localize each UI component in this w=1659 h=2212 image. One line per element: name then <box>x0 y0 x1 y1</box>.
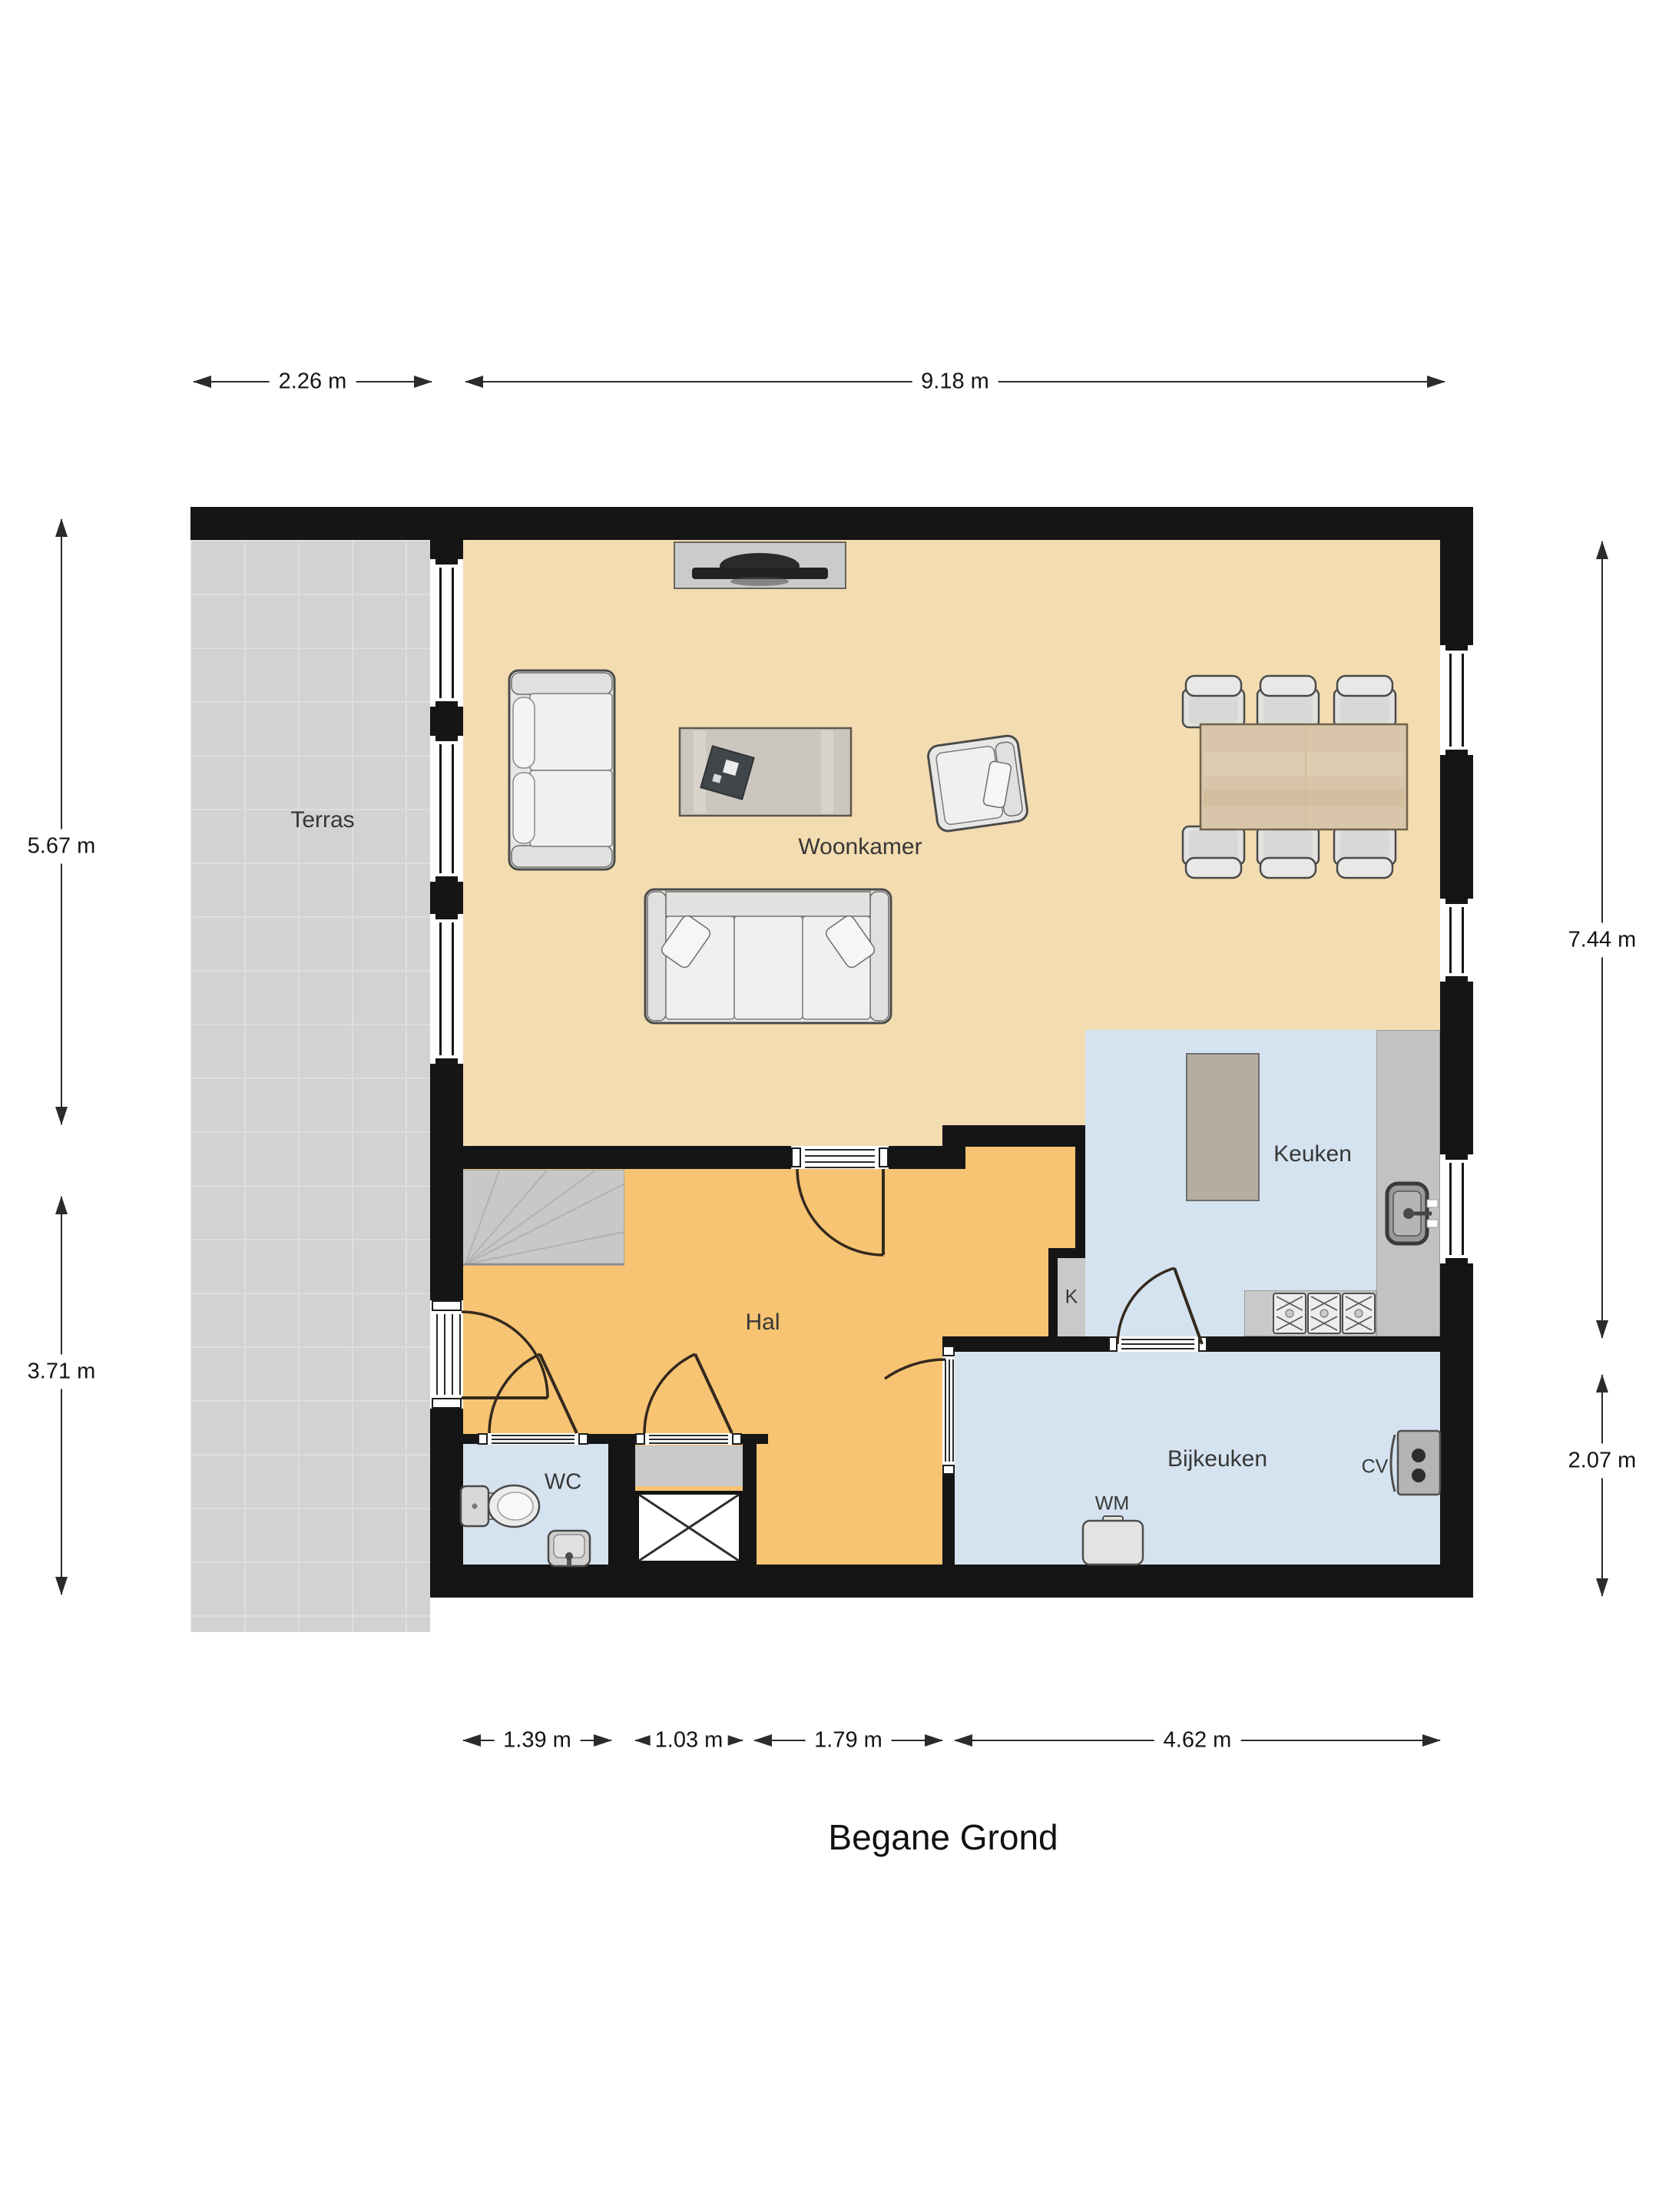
dining-table <box>1200 724 1407 829</box>
arrow-left-icon <box>753 1734 772 1747</box>
dining-chair <box>1257 676 1319 727</box>
dimension-label: 1.79 m <box>805 1728 892 1753</box>
label-bijkeuken: Bijkeuken <box>1167 1446 1267 1472</box>
dimension-left-lower: 3.71 m <box>61 1197 62 1594</box>
dimension-label: 4.62 m <box>1154 1728 1241 1753</box>
floor-plan-page: Terras Woonkamer Keuken Hal WC Bijkeuken… <box>0 0 1659 2212</box>
dimension-bottom-scullery: 4.62 m <box>955 1740 1440 1741</box>
arrow-up-icon <box>1596 541 1608 559</box>
dining-chair <box>1183 676 1244 727</box>
dining-chair <box>1334 826 1396 878</box>
dimension-label: 7.44 m <box>1565 922 1640 957</box>
dimension-label: 1.39 m <box>494 1728 581 1753</box>
sink-icon <box>1387 1184 1438 1243</box>
washing-machine-icon <box>1083 1516 1143 1565</box>
shaft-cross-icon <box>639 1495 739 1561</box>
arrow-down-icon <box>1596 1578 1608 1597</box>
dimension-label: 5.67 m <box>25 829 99 863</box>
page-title: Begane Grond <box>828 1816 1058 1858</box>
dimension-label: 3.71 m <box>25 1354 99 1389</box>
stairs-treads <box>463 1171 624 1264</box>
label-terras: Terras <box>290 807 354 833</box>
arrow-left-icon <box>465 376 483 388</box>
stove-icon <box>1273 1293 1375 1333</box>
dimension-label: 2.07 m <box>1565 1444 1640 1479</box>
label-keuken: Keuken <box>1273 1141 1352 1167</box>
dimension-label: 2.26 m <box>270 369 356 395</box>
arrow-down-icon <box>1596 1320 1608 1339</box>
coffee-table <box>680 728 851 816</box>
dimension-right-upper: 7.44 m <box>1601 541 1603 1338</box>
boiler-icon <box>1391 1431 1440 1495</box>
arrow-right-icon <box>1422 1734 1441 1747</box>
door-arc <box>462 1169 1202 1433</box>
arrow-left-icon <box>193 376 211 388</box>
dining-chair <box>1257 826 1319 878</box>
dimension-right-lower: 2.07 m <box>1601 1375 1603 1596</box>
label-wm: WM <box>1095 1493 1129 1515</box>
dimension-top-terrace: 2.26 m <box>194 381 432 382</box>
arrow-left-icon <box>954 1734 972 1747</box>
dining-chair <box>1334 676 1396 727</box>
tv-icon <box>692 553 828 586</box>
arrow-left-icon <box>462 1734 481 1747</box>
basin-icon <box>548 1531 590 1566</box>
arrow-up-icon <box>55 518 68 537</box>
label-cv: CV <box>1362 1456 1389 1479</box>
plan-overlay <box>0 0 1659 2212</box>
arrow-right-icon <box>414 376 432 388</box>
arrow-down-icon <box>55 1577 68 1595</box>
dimension-label: 9.18 m <box>912 369 998 395</box>
dimension-label: 1.03 m <box>651 1728 728 1753</box>
label-wc: WC <box>545 1470 581 1495</box>
arrow-right-icon <box>1427 376 1445 388</box>
arrow-right-icon <box>725 1734 743 1747</box>
arrow-up-icon <box>1596 1374 1608 1392</box>
arrow-right-icon <box>925 1734 943 1747</box>
sofa-two-seat <box>509 671 614 869</box>
arrow-down-icon <box>55 1107 68 1125</box>
dimension-top-house: 9.18 m <box>465 381 1445 382</box>
sofa-three-seat <box>645 889 891 1023</box>
label-woonkamer: Woonkamer <box>798 834 922 860</box>
dimension-bottom-shaft: 1.03 m <box>635 1740 743 1741</box>
dimension-bottom-hall: 1.79 m <box>754 1740 942 1741</box>
label-closet-k: K <box>1065 1286 1078 1309</box>
dimension-left-upper: 5.67 m <box>61 519 62 1124</box>
dimension-bottom-wc: 1.39 m <box>463 1740 611 1741</box>
toilet-icon <box>461 1485 539 1527</box>
armchair <box>927 734 1028 832</box>
arrow-right-icon <box>594 1734 612 1747</box>
label-hal: Hal <box>745 1310 780 1336</box>
dining-chair <box>1183 826 1244 878</box>
arrow-up-icon <box>55 1196 68 1214</box>
